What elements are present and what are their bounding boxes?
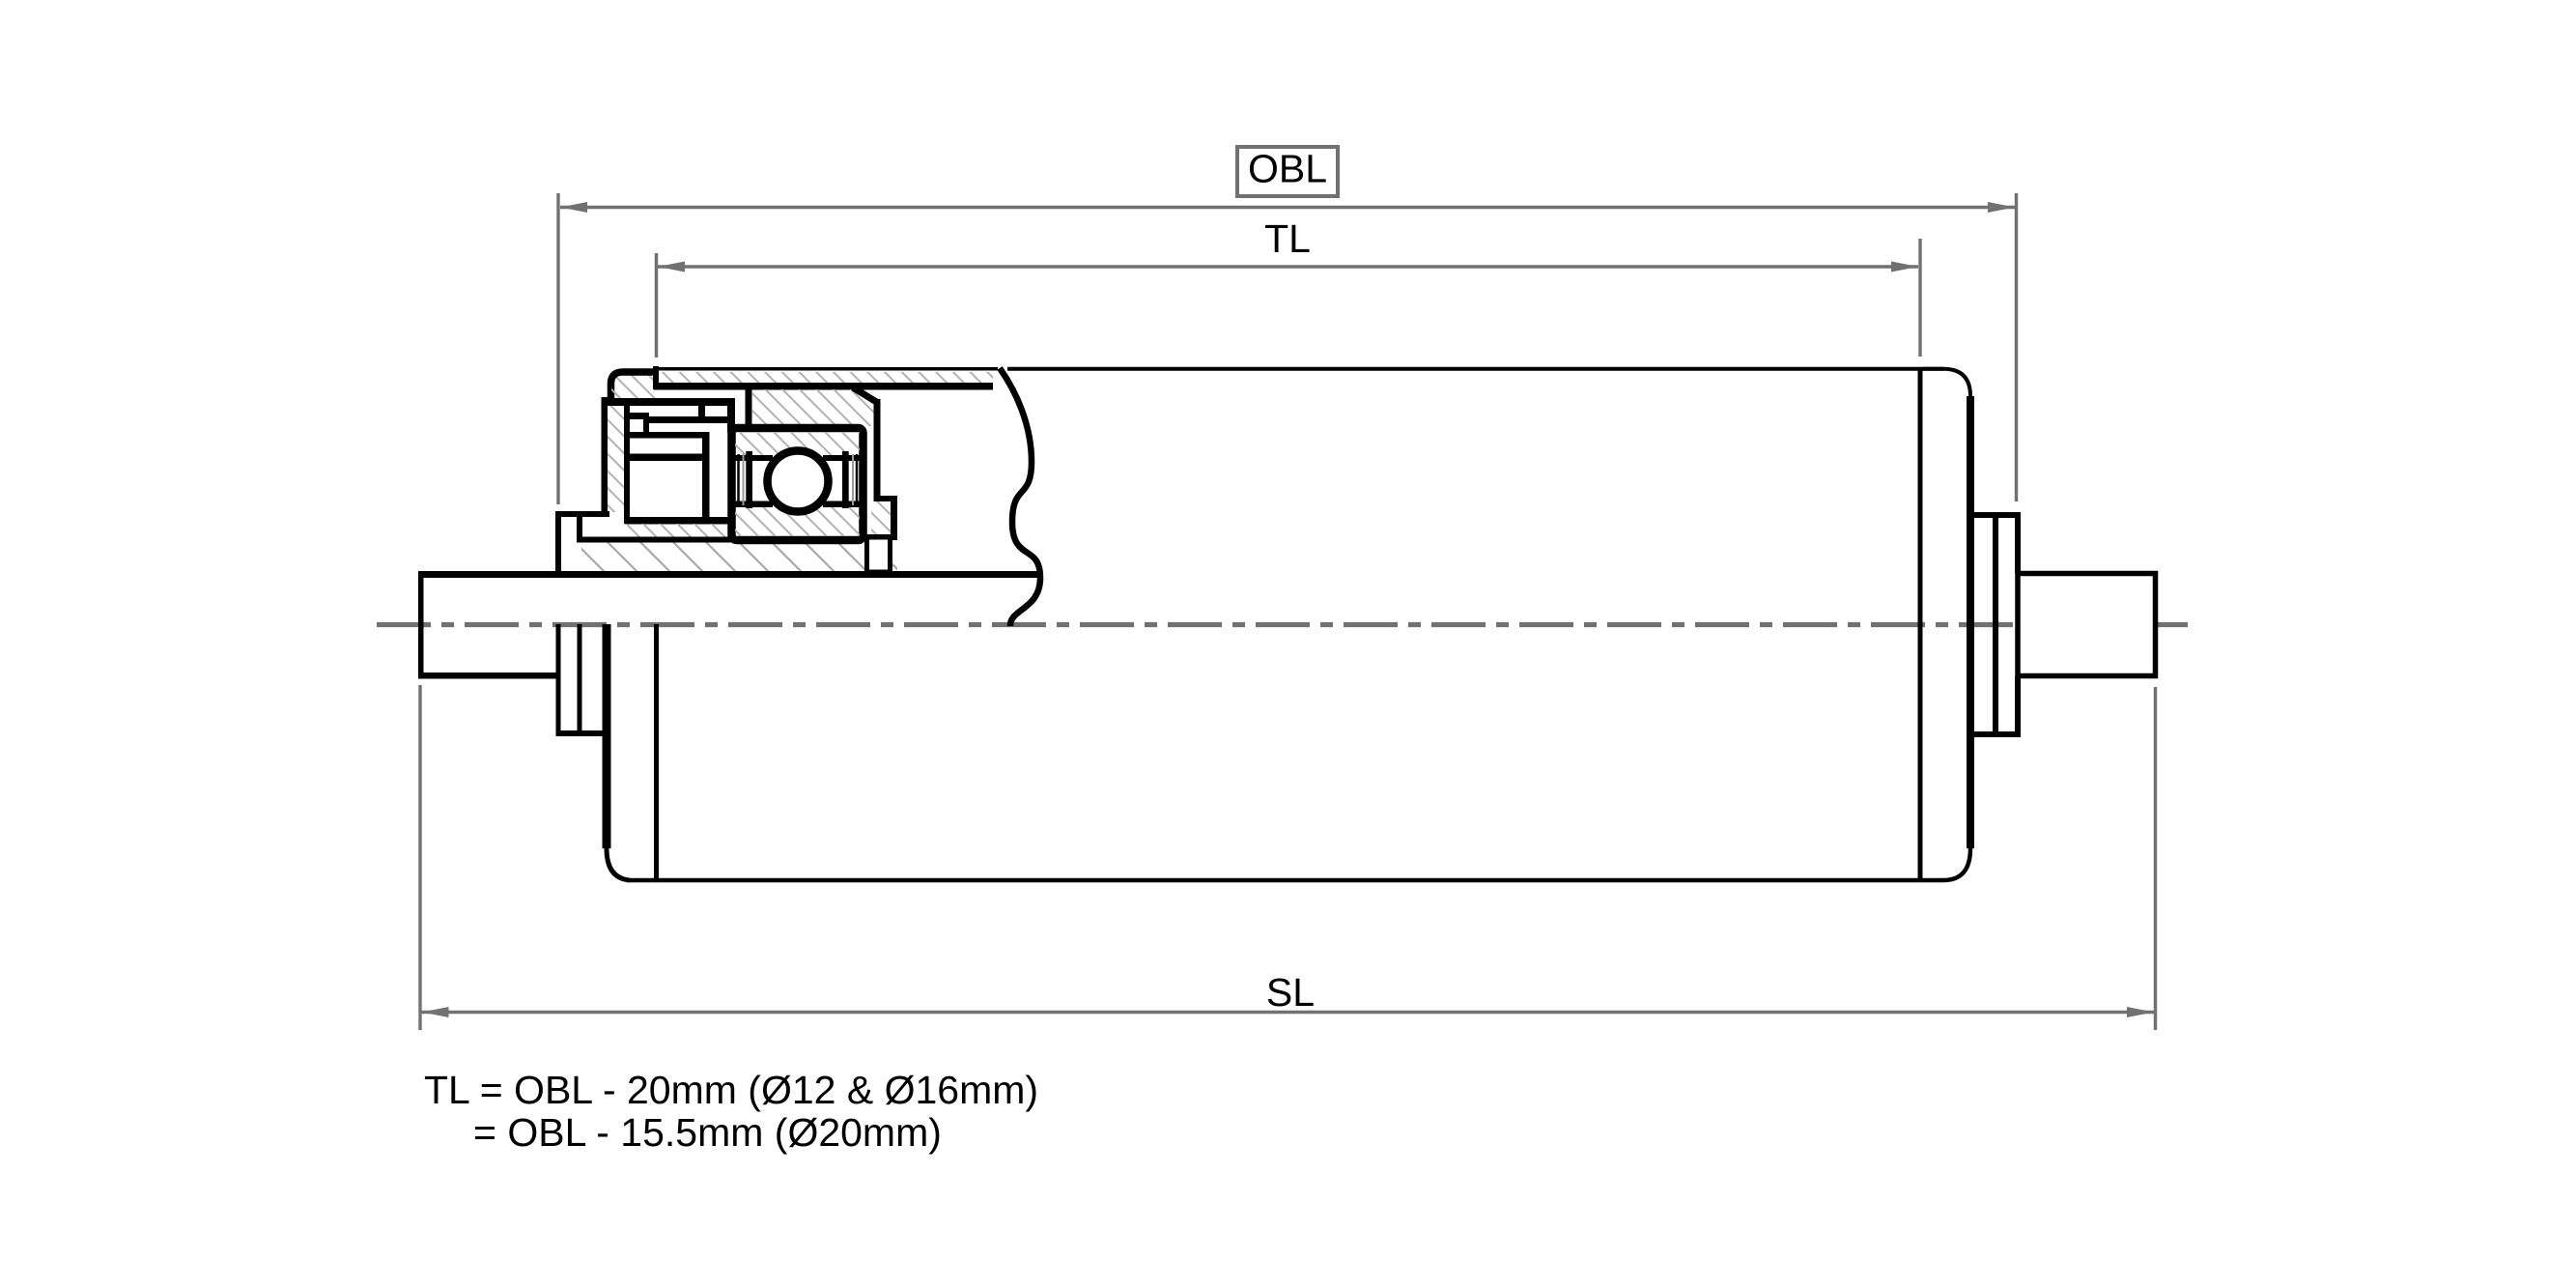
svg-text:SL: SL [1266, 970, 1315, 1015]
svg-text:OBL: OBL [1248, 147, 1327, 191]
svg-text:TL: TL [1264, 216, 1311, 261]
svg-text:= OBL - 15.5mm (Ø20mm): = OBL - 15.5mm (Ø20mm) [473, 1110, 942, 1155]
svg-text:TL = OBL - 20mm (Ø12 & Ø16mm): TL = OBL - 20mm (Ø12 & Ø16mm) [424, 1068, 1038, 1112]
